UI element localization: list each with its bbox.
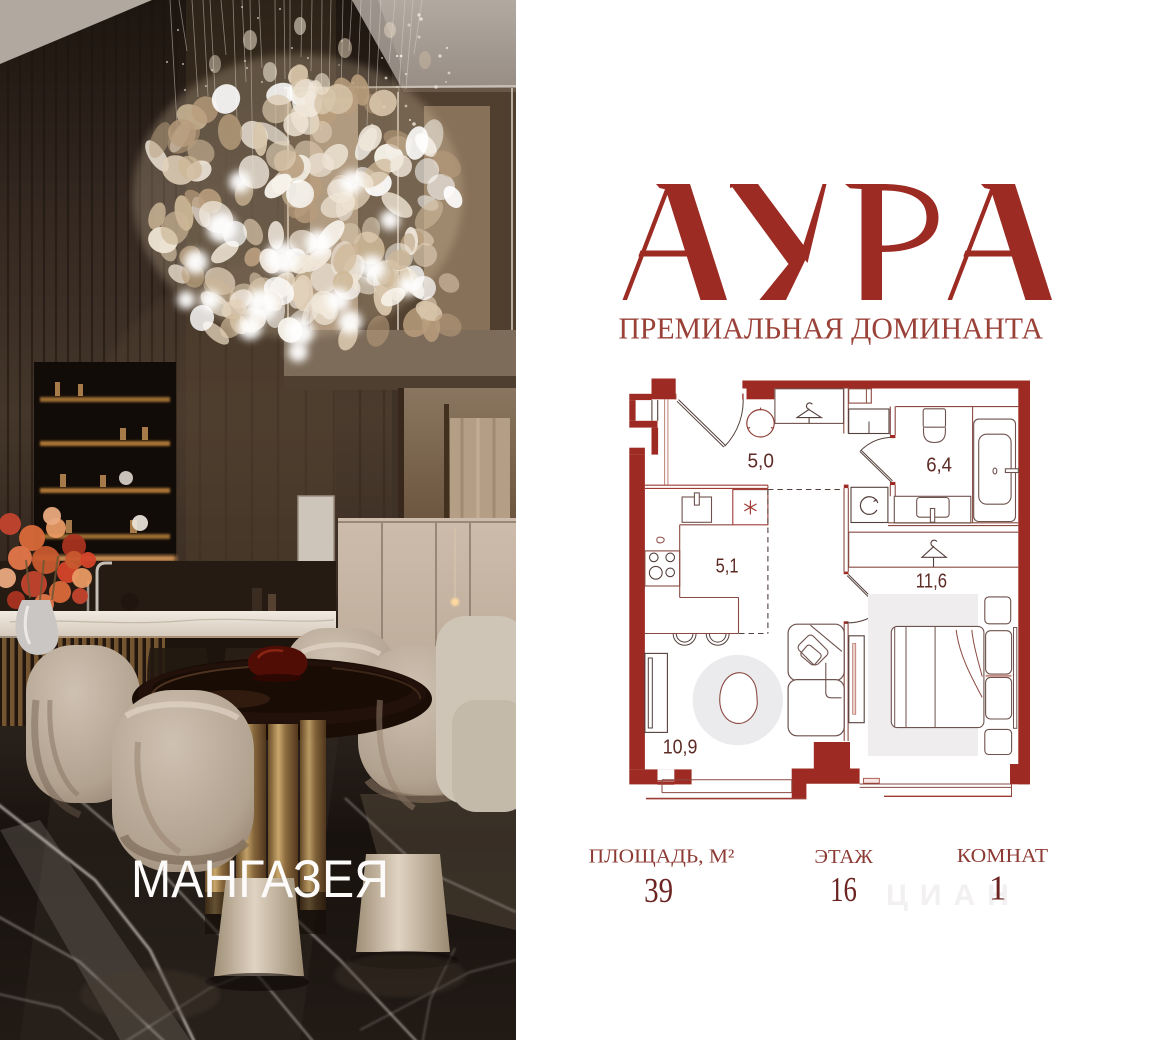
svg-text:МАНГАЗЕЯ: МАНГАЗЕЯ xyxy=(131,850,389,909)
svg-text:КОМНАТ: КОМНАТ xyxy=(957,846,1048,867)
svg-text:5,0: 5,0 xyxy=(748,450,774,473)
svg-text:6,4: 6,4 xyxy=(926,454,952,477)
svg-text:ПЛОЩАДЬ, М²: ПЛОЩАДЬ, М² xyxy=(589,847,735,868)
svg-text:5,1: 5,1 xyxy=(716,555,739,578)
svg-text:11,6: 11,6 xyxy=(916,569,947,592)
svg-text:1: 1 xyxy=(989,869,1007,908)
svg-text:10,9: 10,9 xyxy=(663,736,698,759)
svg-text:ПРЕМИАЛЬНАЯ ДОМИНАНТА: ПРЕМИАЛЬНАЯ ДОМИНАНТА xyxy=(619,311,1044,346)
svg-text:39: 39 xyxy=(644,871,673,910)
svg-text:16: 16 xyxy=(830,870,857,909)
svg-text:ЭТАЖ: ЭТАЖ xyxy=(814,847,873,868)
